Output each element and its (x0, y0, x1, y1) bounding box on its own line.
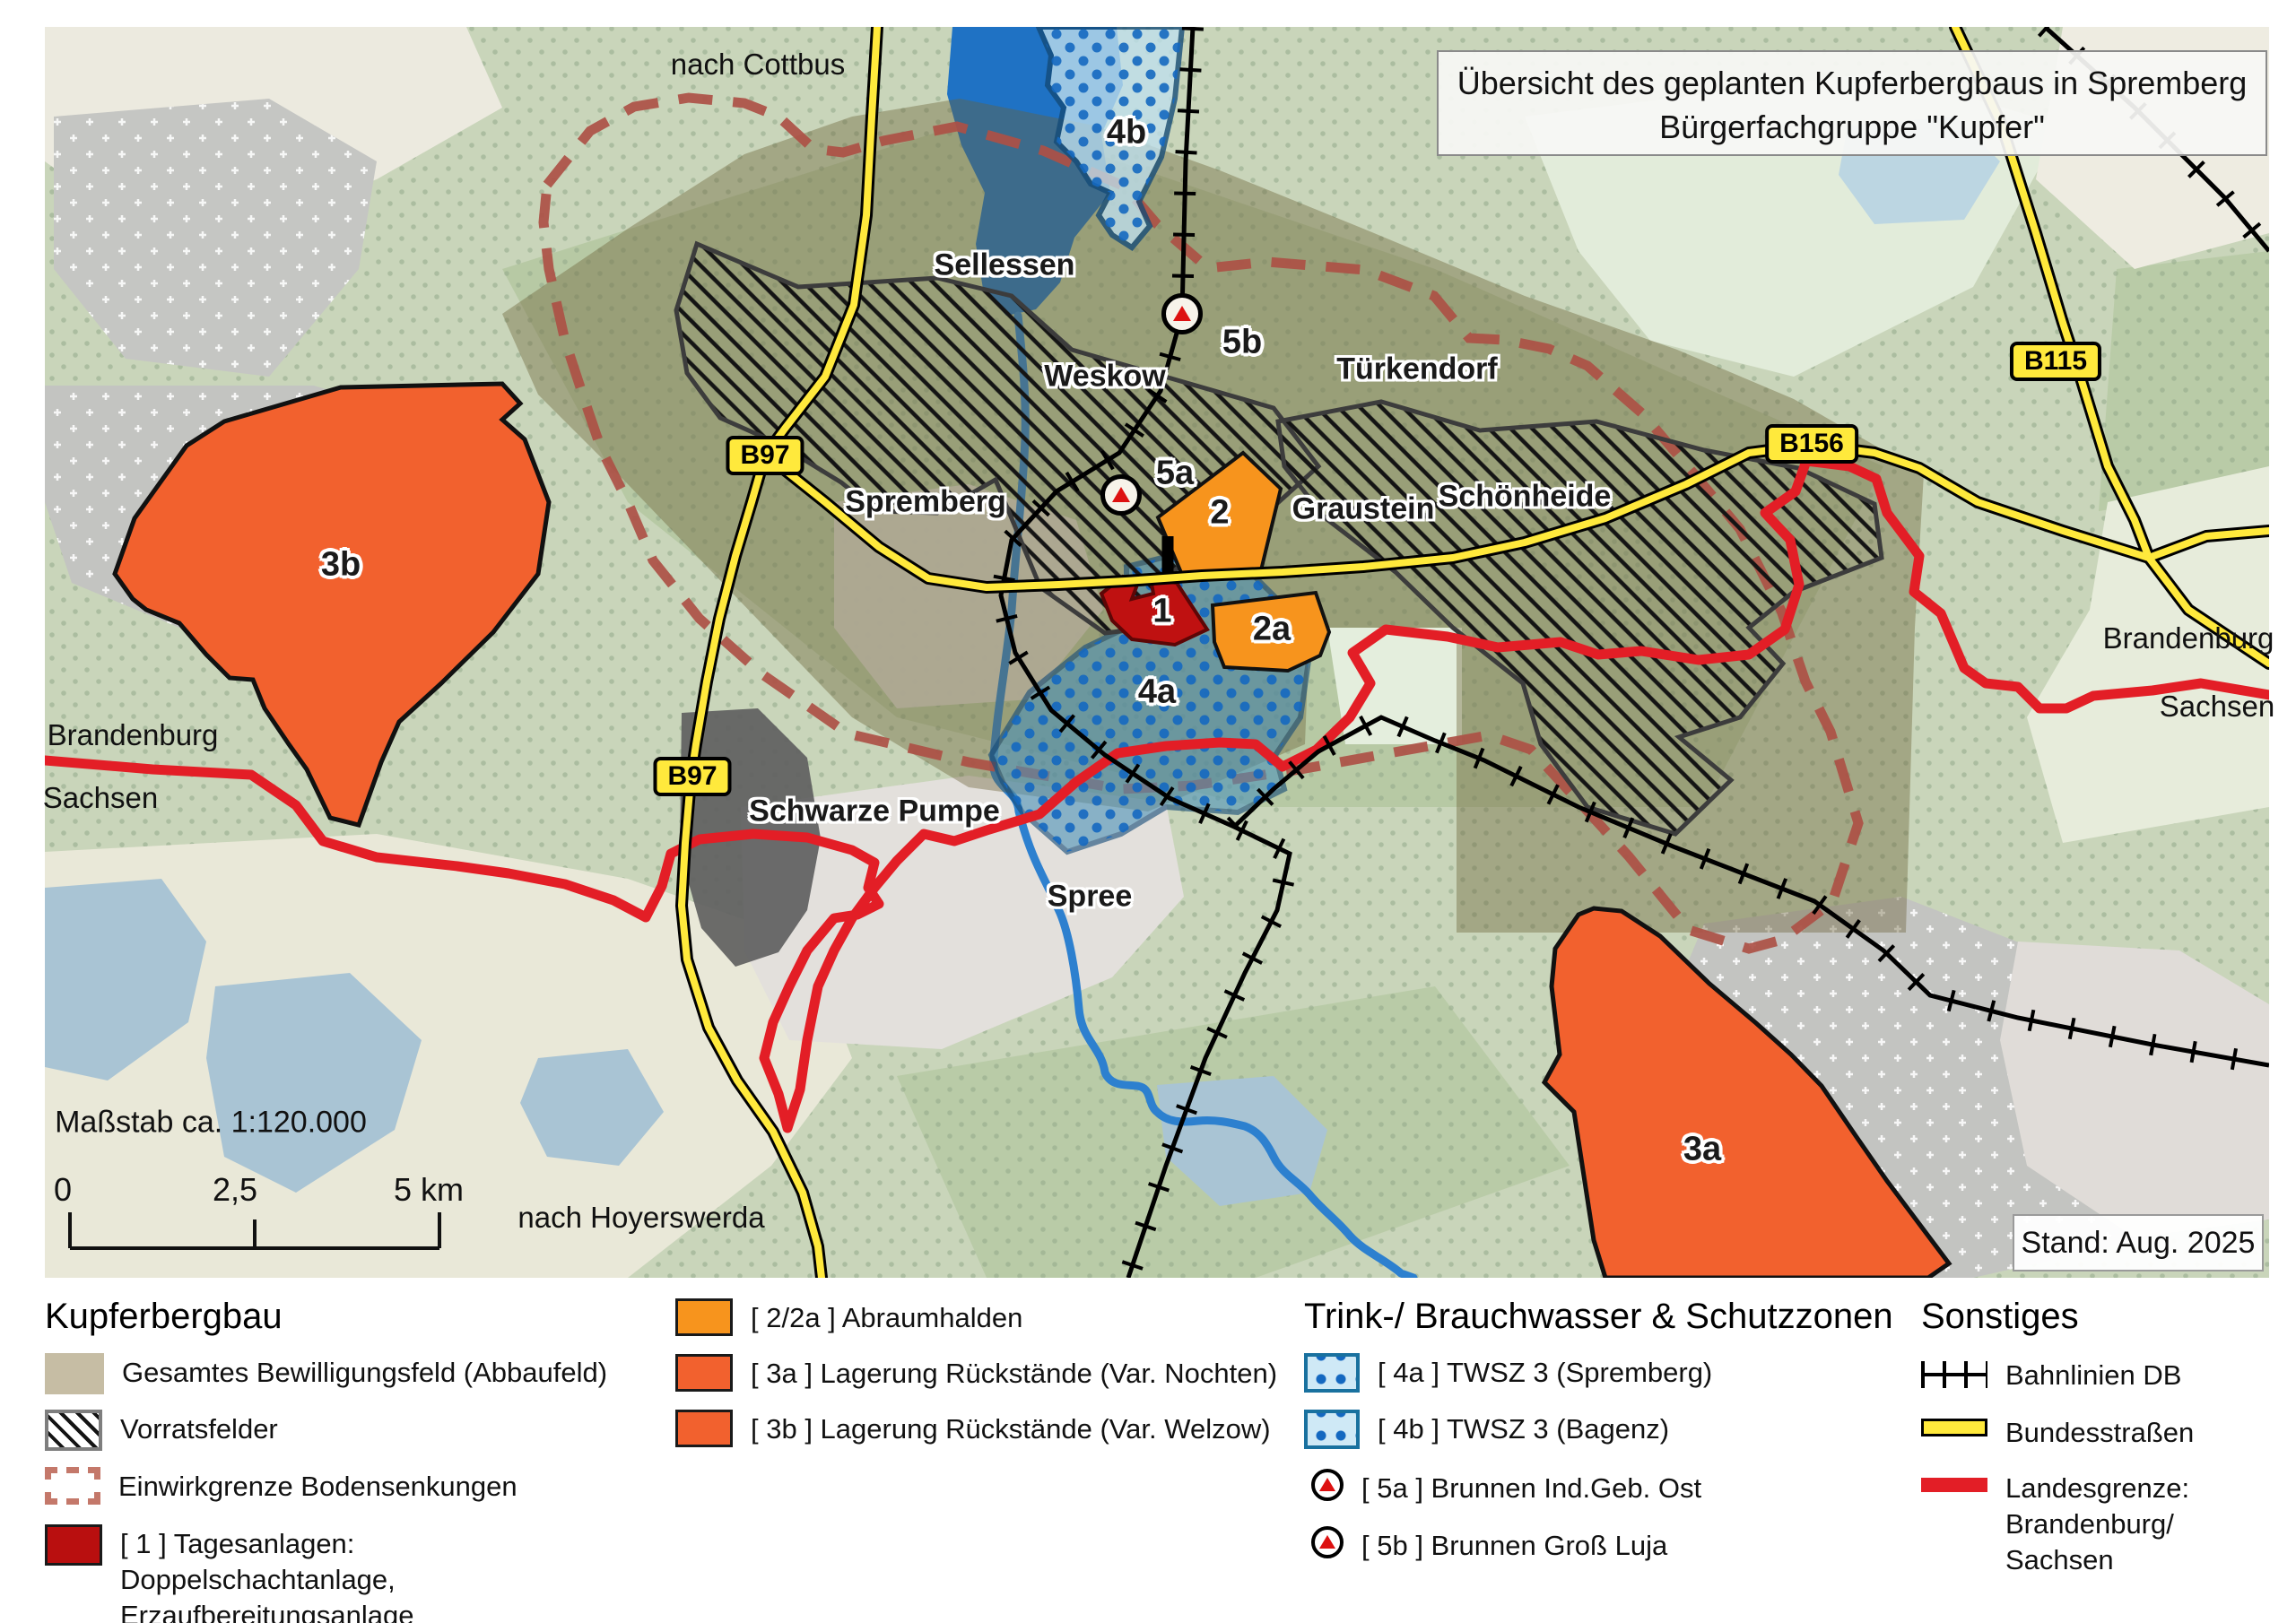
stand-badge: Stand: Aug. 2025 (2013, 1214, 2264, 1271)
well-triangle-icon (1173, 306, 1191, 321)
legend-item-rueckstaende-3b: [ 3b ] Lagerung Rückstände (Var. Welzow) (675, 1410, 1271, 1447)
road-shield-b97-north: B97 (726, 436, 804, 475)
legend-item-label: [ 5a ] Brunnen Ind.Geb. Ost (1361, 1469, 1701, 1506)
legend-item-landesgrenze: Landesgrenze: Brandenburg/ Sachsen (1921, 1469, 2194, 1578)
railway-icon (1921, 1361, 1987, 1388)
legend-item-label: Vorratsfelder (120, 1410, 278, 1447)
brunnen-5b-marker (1161, 293, 1203, 334)
legend-item-label: [ 5b ] Brunnen Groß Luja (1361, 1526, 1667, 1564)
legend-item-label: Einwirkgrenze Bodensenkungen (118, 1467, 517, 1505)
legend-item-twsz-4b: [ 4b ] TWSZ 3 (Bagenz) (1304, 1410, 1669, 1449)
legend-item-label: [ 3b ] Lagerung Rückstände (Var. Welzow) (751, 1410, 1271, 1447)
map-title-box: Übersicht des geplanten Kupferbergbaus i… (1437, 50, 2267, 156)
legend-item-twsz-4a: [ 4a ] TWSZ 3 (Spremberg) (1304, 1353, 1712, 1393)
twsz-4b-swatch (1304, 1410, 1360, 1449)
map-title-line1: Übersicht des geplanten Kupferbergbaus i… (1439, 61, 2266, 105)
tagesanlagen-swatch (45, 1524, 102, 1566)
legend-item-brunnen-5a: [ 5a ] Brunnen Ind.Geb. Ost (1304, 1469, 1701, 1506)
legend-item-label: [ 4a ] TWSZ 3 (Spremberg) (1378, 1353, 1712, 1391)
legend-item-tagesanlagen: [ 1 ] Tagesanlagen: Doppelschachtanlage,… (45, 1524, 637, 1623)
legend-item-bundesstrassen: Bundesstraßen (1921, 1413, 2194, 1451)
vorratsfelder-swatch (45, 1410, 102, 1451)
legend-item-label: Landesgrenze: Brandenburg/ Sachsen (2005, 1469, 2194, 1578)
twsz-4a-swatch (1304, 1353, 1360, 1393)
rueckstaende-3a-swatch (675, 1354, 733, 1392)
legend-item-bewilligungsfeld: Gesamtes Bewilligungsfeld (Abbaufeld) (45, 1353, 607, 1394)
legend-item-label: [ 2/2a ] Abraumhalden (751, 1298, 1022, 1336)
legend-item-brunnen-5b: [ 5b ] Brunnen Groß Luja (1304, 1526, 1667, 1564)
brunnen-5a-marker (1100, 474, 1142, 516)
landesgrenze-icon (1921, 1478, 1987, 1492)
abraumhalde-2a-polygon (1213, 593, 1329, 671)
bewilligungsfeld-swatch (45, 1353, 104, 1394)
well-triangle-icon (1319, 1478, 1335, 1491)
legend-section-kupferbergbau-title: Kupferbergbau (45, 1297, 283, 1337)
legend-item-rueckstaende-3a: [ 3a ] Lagerung Rückstände (Var. Nochten… (675, 1354, 1277, 1392)
well-triangle-icon (1112, 487, 1130, 502)
legend-item-abraumhalden: [ 2/2a ] Abraumhalden (675, 1298, 1022, 1336)
legend-item-vorratsfelder: Vorratsfelder (45, 1410, 278, 1451)
legend-section-sonstiges-title: Sonstiges (1921, 1297, 2079, 1337)
brunnen-icon (1311, 1526, 1344, 1558)
legend-item-label: [ 4b ] TWSZ 3 (Bagenz) (1378, 1410, 1669, 1447)
road-shield-b97-south: B97 (653, 757, 731, 796)
map-poster: nach Cottbus Sellessen 4b 5b Weskow Türk… (0, 0, 2296, 1623)
rueckstaende-3b-swatch (675, 1410, 733, 1447)
legend-item-label: Bahnlinien DB (2005, 1356, 2181, 1393)
legend-item-label: Bundesstraßen (2005, 1413, 2194, 1451)
road-shield-b115: B115 (2010, 342, 2101, 381)
abraumhalden-swatch (675, 1298, 733, 1336)
road-shield-b156: B156 (1765, 424, 1858, 464)
brunnen-icon (1311, 1469, 1344, 1501)
well-triangle-icon (1319, 1535, 1335, 1549)
legend-item-label: [ 1 ] Tagesanlagen: Doppelschachtanlage,… (120, 1524, 637, 1623)
legend-item-bahnlinien: Bahnlinien DB (1921, 1356, 2181, 1393)
bundesstrasse-icon (1921, 1419, 1987, 1436)
legend-item-label: [ 3a ] Lagerung Rückstände (Var. Nochten… (751, 1354, 1277, 1392)
legend-item-label: Gesamtes Bewilligungsfeld (Abbaufeld) (122, 1353, 607, 1391)
einwirkgrenze-swatch (45, 1467, 100, 1505)
map-title-line2: Bürgerfachgruppe "Kupfer" (1439, 105, 2266, 149)
legend-section-wasser-title: Trink-/ Brauchwasser & Schutzzonen (1304, 1297, 1893, 1337)
legend-item-einwirkgrenze: Einwirkgrenze Bodensenkungen (45, 1467, 517, 1505)
